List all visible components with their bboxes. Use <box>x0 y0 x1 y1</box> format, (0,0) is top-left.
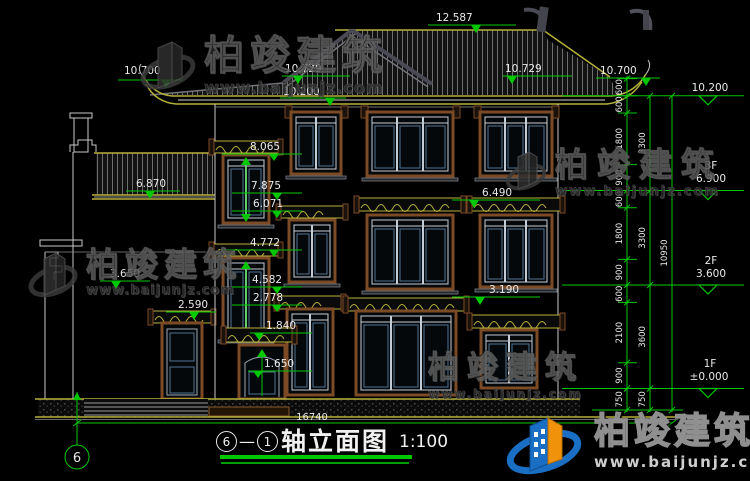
lintel <box>279 296 341 309</box>
lintel-cap <box>343 296 348 313</box>
window-frame <box>356 311 456 395</box>
chain-seg: 600 <box>615 286 625 302</box>
chain-total-height: 10950 <box>660 239 670 266</box>
lintel-cap <box>209 139 214 155</box>
chain-seg: 1800 <box>615 128 625 150</box>
lintel-cap <box>343 204 348 220</box>
total-width-label: 16740 <box>296 412 328 423</box>
title-underline-thick <box>220 455 412 459</box>
chain-seg: 600 <box>615 191 625 207</box>
dim-stair2-win-sill: 2.778 <box>253 292 283 304</box>
cad-elevation-screenshot: 10.700 10.729 10.200 12.587 10.729 10.70… <box>0 0 750 481</box>
lintel <box>472 315 560 328</box>
floor-level-tags: 10.200 3F 6.900 2F 3.600 1F ±0.000 <box>690 82 729 398</box>
chain-seg: 900 <box>615 264 625 280</box>
chain-floor: 3300 <box>638 132 648 154</box>
dim-stair2-lintel: 4.772 <box>250 237 280 249</box>
floor1-tag: 1F <box>704 358 717 370</box>
floor1-value: ±0.000 <box>690 371 729 383</box>
dim-arrow <box>475 297 485 305</box>
floor2-value: 3.600 <box>696 268 726 280</box>
dim-balcony-2f: 3.190 <box>489 284 519 296</box>
drawing-title: 6 — 1 轴立面图 1:100 <box>216 429 448 454</box>
window-3f-center <box>361 106 460 181</box>
window-2f-center <box>354 196 466 294</box>
lintel <box>281 206 343 218</box>
lintel-cap <box>209 242 214 258</box>
dim-fascia-left: 10.200 <box>283 86 320 98</box>
sill <box>362 178 458 181</box>
title-underline-thin <box>221 462 409 464</box>
dim-arrow <box>161 80 171 88</box>
dim-left-roof: 6.870 <box>136 178 166 190</box>
dim-porch-head: 1.840 <box>266 320 296 332</box>
dim-ridge: 12.587 <box>436 12 473 24</box>
dim-left-cornice: 3.650 <box>110 268 140 280</box>
level-triangle <box>699 191 717 200</box>
title-axis-end: 1 <box>257 431 278 452</box>
dim-stair-win-top: 7.875 <box>251 180 281 192</box>
chimney-cap <box>70 113 92 118</box>
main-roof <box>139 6 650 104</box>
axis-bubble-label: 6 <box>73 451 81 466</box>
chain-seg: 1800 <box>615 223 625 245</box>
sill <box>286 176 346 179</box>
lintel-cap <box>467 313 472 330</box>
floor3-value: 6.900 <box>696 173 726 185</box>
window-1f-right <box>467 313 565 388</box>
window-3f-right <box>474 106 559 181</box>
dim-porch-sill: 1.650 <box>264 358 294 370</box>
dim-arrow <box>641 78 651 86</box>
left-door <box>148 309 216 399</box>
floor2-tag: 2F <box>705 255 718 267</box>
chain-floor: 3600 <box>638 326 648 348</box>
lintel-cap <box>464 296 469 313</box>
right-dimension-chains: 600 600 1800 900 600 1800 900 600 2100 9… <box>562 76 744 413</box>
window-frame <box>480 112 552 176</box>
lintel-cap <box>560 196 565 213</box>
roof-tiles <box>150 30 618 95</box>
level-triangle <box>699 389 717 398</box>
dim-left-door-head: 2.590 <box>178 299 208 311</box>
level-triangle <box>699 285 717 294</box>
lintel-cap <box>221 326 226 344</box>
eave-finial <box>643 10 649 30</box>
dim-stair-win-sill: 6.071 <box>253 198 283 210</box>
chain-floor: 3300 <box>638 227 648 249</box>
window-2f-right <box>467 196 565 292</box>
lintel-cap <box>560 313 565 330</box>
chain-seg: 900 <box>615 169 625 185</box>
chain-seg: 2100 <box>615 322 625 344</box>
window-2f-left <box>276 204 348 287</box>
window-frame <box>367 112 453 176</box>
dim-stair-lintel: 8.065 <box>250 141 280 153</box>
sill <box>362 291 458 294</box>
dim-arrow <box>325 98 335 106</box>
chain-floor: 750 <box>638 391 648 407</box>
chain-seg: 750 <box>615 391 625 407</box>
title-scale: 1:100 <box>399 432 448 452</box>
dim-eave-right-inner: 10.729 <box>505 63 542 75</box>
window-3f-left <box>285 106 348 179</box>
sill <box>218 225 274 228</box>
title-dash: — <box>239 432 255 451</box>
lintel-cap <box>461 196 466 213</box>
cornice-profile <box>45 252 62 280</box>
ground <box>35 399 705 420</box>
chimney <box>74 118 88 152</box>
chain-seg: 900 <box>615 367 625 383</box>
chain-labels: 600 600 1800 900 600 1800 900 600 2100 9… <box>615 79 670 407</box>
cornice-cap <box>40 240 82 246</box>
dim-eave-left: 10.700 <box>124 65 161 77</box>
title-axis-start: 6 <box>216 431 237 452</box>
dim-fascia-right: 10.200 <box>692 82 729 94</box>
window-1f-center <box>343 296 469 395</box>
lintel-cap <box>467 196 472 213</box>
level-triangle <box>699 96 717 105</box>
chain-seg: 600 <box>615 79 625 95</box>
sill <box>475 178 557 181</box>
platform <box>209 407 289 416</box>
floor3-tag: 3F <box>705 160 718 172</box>
chain-seg: 600 <box>615 96 625 112</box>
lintel-cap <box>148 309 153 325</box>
dim-balcony-3f: 6.490 <box>482 187 512 199</box>
title-name: 轴立面图 <box>281 429 389 454</box>
eave-hook-right <box>646 60 650 74</box>
axis-arrow <box>73 392 81 400</box>
dim-arrow <box>111 281 121 289</box>
elevation-drawing: 10.700 10.729 10.200 12.587 10.729 10.70… <box>0 0 750 481</box>
lintel-cap <box>354 196 359 213</box>
dim-eave-right: 10.700 <box>600 65 637 77</box>
dim-eave-left-inner: 10.729 <box>285 63 322 75</box>
dim-stair2-win-top: 4.582 <box>252 274 282 286</box>
